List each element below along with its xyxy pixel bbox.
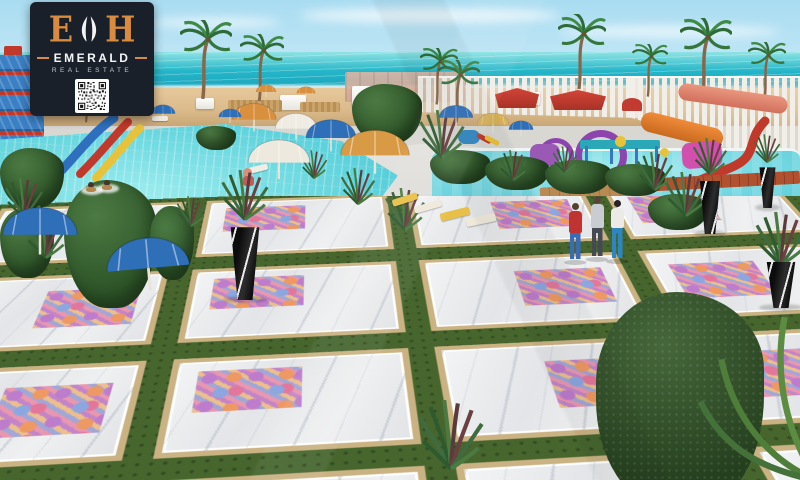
marble-panel (118, 466, 443, 480)
umbrella-icon (102, 231, 195, 296)
mosaic-inlay (513, 267, 617, 306)
red-dome (622, 98, 642, 111)
tropical-plant-icon (176, 196, 206, 228)
logo-letter-e: E (49, 8, 73, 51)
cloud (300, 8, 560, 23)
red-canopy (495, 88, 539, 108)
striped-vase (698, 158, 722, 234)
umbrella-icon (296, 86, 316, 99)
straw-shade (300, 102, 340, 112)
person-red-shirt (566, 203, 584, 265)
leaf-logo-icon (77, 11, 101, 47)
salmon-tube-slide (677, 82, 788, 114)
brand-row: EMERALD (37, 51, 148, 65)
marble-panel (0, 361, 147, 477)
umbrella-icon (218, 108, 242, 124)
striped-vase (228, 196, 262, 300)
striped-vase (758, 150, 777, 208)
brand-name: EMERALD (54, 51, 131, 65)
palm-tree-icon (180, 20, 232, 102)
straw-umbrella-icon (338, 128, 412, 176)
person-gray-shirt (588, 196, 606, 262)
yellow-float (615, 136, 626, 147)
divider-dash (37, 57, 49, 59)
resort-render: E H EMERALD REAL ESTATE (0, 0, 800, 480)
marble-panel (153, 348, 421, 459)
umbrella-icon (508, 120, 534, 137)
vase-plant-icon (754, 212, 800, 268)
qr-code (75, 79, 109, 113)
sun-lounger (152, 116, 168, 121)
marble-panel (177, 261, 406, 343)
mini-slide (484, 135, 500, 147)
support-post (610, 148, 613, 164)
vase-plant-icon (220, 170, 270, 222)
logo-mark: E H (49, 10, 136, 50)
umbrella-icon (0, 205, 80, 257)
red-canopy (550, 90, 606, 110)
vase-plant-icon (692, 138, 728, 176)
tropical-plant-icon (552, 146, 578, 174)
person-white-top (608, 200, 626, 264)
tropical-plant-icon (416, 400, 486, 472)
umbrella-icon (476, 112, 510, 134)
tropical-plant-icon (498, 150, 528, 182)
umbrella-icon (438, 104, 474, 128)
mosaic-inlay (0, 383, 114, 440)
vase-plant-icon (753, 134, 781, 164)
mosaic-inlay (191, 367, 302, 414)
divider-dash (135, 57, 147, 59)
palm-fronds-icon (688, 296, 800, 480)
logo-letter-h: H (105, 8, 135, 51)
brand-tagline: REAL ESTATE (52, 67, 132, 74)
logo-card: E H EMERALD REAL ESTATE (30, 2, 154, 116)
umbrella-icon (255, 84, 277, 98)
